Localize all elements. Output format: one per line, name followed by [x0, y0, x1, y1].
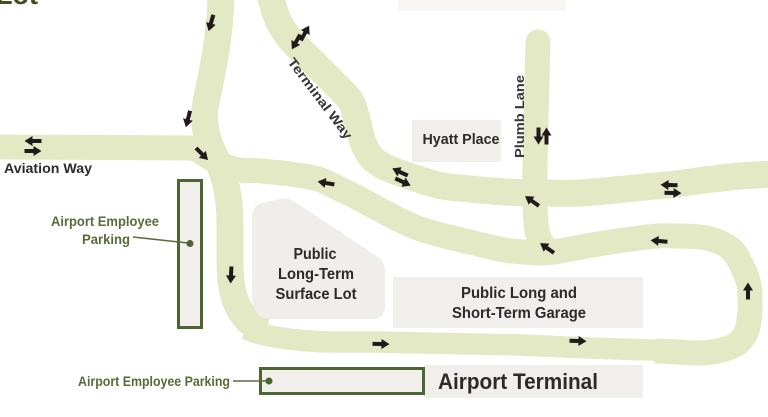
svg-text:Public Long and: Public Long and [461, 285, 577, 302]
svg-text:Long-Term: Long-Term [278, 266, 354, 283]
svg-text:Lot: Lot [0, 0, 38, 10]
svg-text:Parking: Parking [82, 231, 130, 247]
svg-text:Aviation Way: Aviation Way [4, 160, 92, 176]
svg-text:Airport Terminal: Airport Terminal [438, 369, 598, 394]
svg-text:Airport Employee: Airport Employee [51, 213, 159, 229]
svg-text:Public: Public [294, 246, 337, 263]
svg-text:Hyatt Place: Hyatt Place [423, 132, 500, 148]
svg-text:Plumb Lane: Plumb Lane [512, 75, 527, 158]
svg-text:Short-Term Garage: Short-Term Garage [452, 305, 586, 322]
svg-text:Airport Employee Parking: Airport Employee Parking [78, 373, 230, 389]
svg-text:Surface Lot: Surface Lot [276, 286, 357, 303]
